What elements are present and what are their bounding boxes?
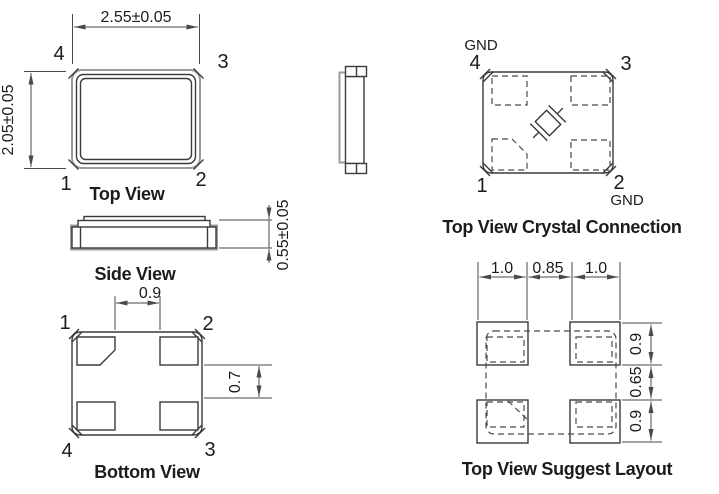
crystal-pin1-label: 1	[476, 175, 487, 197]
layout-vgap-dim: 0.65	[628, 366, 645, 397]
side-view-extension-lines	[219, 220, 272, 248]
top-view-pin3-label: 3	[217, 51, 228, 73]
layout-land-pad-top-left	[477, 322, 528, 365]
suggest-layout-caption: Top View Suggest Layout	[462, 459, 673, 479]
drawing-canvas: 2.55±0.05 2.05±0.05 4 3 1 2 Top View 0.5…	[0, 0, 719, 494]
crystal-connection-caption: Top View Crystal Connection	[442, 217, 681, 237]
bottom-view: 0.9 0.7 1 2 4 3 Bottom View	[59, 285, 272, 482]
bottom-view-caption: Bottom View	[94, 462, 201, 482]
top-view-pin2-label: 2	[195, 169, 206, 191]
bottom-view-pad3	[160, 402, 198, 430]
crystal-connection-view: GND 4 3 1 2 GND Top View Crystal Connect…	[442, 37, 681, 237]
top-view-seal-ring-outer	[77, 75, 196, 164]
top-view-caption: Top View	[90, 184, 166, 204]
layout-left-pad-width-dim: 1.0	[491, 260, 513, 277]
top-view-seal-ring-inner	[81, 79, 192, 160]
layout-land-pad-bottom-left	[477, 400, 528, 443]
bottom-view-side-dim: 0.7	[227, 371, 244, 393]
top-view: 2.55±0.05 2.05±0.05 4 3 1 2 Top View	[0, 9, 229, 204]
side-view-thickness-dim: 0.55±0.05	[275, 199, 292, 270]
bottom-view-pin1-label: 1	[59, 312, 70, 334]
top-view-height-dim: 2.05±0.05	[0, 84, 17, 155]
layout-bottom-pad-height-dim: 0.9	[628, 410, 645, 432]
side-view-caption: Side View	[94, 264, 176, 284]
crystal-pin3-label: 3	[620, 53, 631, 75]
top-view-pin4-label: 4	[53, 43, 64, 65]
bottom-view-pad2	[160, 337, 198, 365]
suggest-layout-view: 1.0 0.85 1.0 0.9 0.65 0.9 Top View Sugge…	[462, 260, 673, 479]
bottom-view-pad4	[77, 402, 115, 430]
layout-top-pad-height-dim: 0.9	[628, 333, 645, 355]
crystal-pin2-label: 2	[613, 172, 624, 194]
end-view-body	[346, 77, 365, 164]
bottom-view-pin3-label: 3	[204, 439, 215, 461]
side-view-base	[72, 227, 216, 248]
end-view	[340, 67, 367, 174]
top-view-width-dim: 2.55±0.05	[100, 9, 171, 26]
top-view-height-extension-lines	[24, 72, 66, 169]
crystal-gnd-bottom-label: GND	[610, 192, 644, 209]
bottom-view-pin4-label: 4	[61, 440, 72, 462]
layout-right-pad-width-dim: 1.0	[585, 260, 607, 277]
layout-gap-dim: 0.85	[532, 260, 563, 277]
crystal-pin4-label: 4	[469, 52, 480, 74]
top-view-pin1-label: 1	[60, 173, 71, 195]
bottom-view-gap-dim: 0.9	[139, 285, 161, 302]
bottom-view-pin2-label: 2	[202, 313, 213, 335]
top-view-corner-notches	[69, 69, 204, 170]
top-view-package-outer	[72, 70, 200, 168]
package-outline-drawing: 2.55±0.05 2.05±0.05 4 3 1 2 Top View 0.5…	[0, 0, 719, 494]
side-view: 0.55±0.05 Side View	[71, 199, 292, 284]
